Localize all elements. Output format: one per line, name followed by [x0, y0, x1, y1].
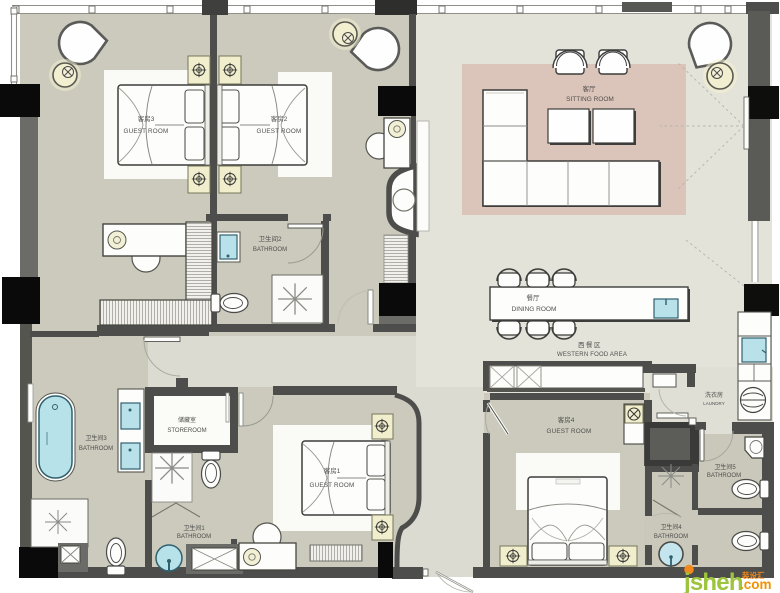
- svg-text:SITTING ROOM: SITTING ROOM: [566, 96, 614, 103]
- svg-text:GUEST ROOM: GUEST ROOM: [547, 428, 592, 435]
- svg-text:卫生间1: 卫生间1: [183, 524, 205, 532]
- svg-text:DINING ROOM: DINING ROOM: [512, 306, 557, 313]
- svg-text:STOREROOM: STOREROOM: [167, 428, 206, 434]
- svg-text:卫生间3: 卫生间3: [85, 434, 107, 442]
- svg-text:GUEST ROOM: GUEST ROOM: [257, 128, 302, 135]
- svg-text:GUEST ROOM: GUEST ROOM: [124, 128, 169, 135]
- svg-text:BATHROOM: BATHROOM: [654, 534, 688, 540]
- svg-text:客房1: 客房1: [324, 466, 341, 475]
- svg-text:餐厅: 餐厅: [527, 293, 541, 302]
- svg-text:客厅: 客厅: [583, 84, 597, 93]
- svg-text:BATHROOM: BATHROOM: [177, 534, 211, 540]
- svg-text:洗衣房: 洗衣房: [705, 391, 723, 399]
- svg-text:卫生间2: 卫生间2: [258, 234, 282, 243]
- svg-text:装设汇: 装设汇: [741, 570, 765, 580]
- svg-text:LAUNDRY: LAUNDRY: [703, 401, 724, 406]
- svg-text:BATHROOM: BATHROOM: [707, 473, 741, 479]
- svg-text:BATHROOM: BATHROOM: [253, 247, 287, 253]
- svg-text:BATHROOM: BATHROOM: [79, 446, 113, 452]
- svg-text:jsheh: jsheh: [683, 569, 743, 593]
- svg-text:GUEST ROOM: GUEST ROOM: [310, 482, 355, 489]
- svg-text:客房4: 客房4: [558, 415, 575, 424]
- svg-text:储藏室: 储藏室: [178, 416, 196, 424]
- svg-text:西餐区: 西餐区: [578, 340, 602, 349]
- svg-text:客房3: 客房3: [138, 114, 155, 123]
- svg-text:卫生间5: 卫生间5: [714, 463, 736, 471]
- svg-text:客房2: 客房2: [271, 114, 288, 123]
- svg-text:WESTERN FOOD AREA: WESTERN FOOD AREA: [557, 352, 627, 358]
- svg-text:卫生间4: 卫生间4: [660, 523, 682, 531]
